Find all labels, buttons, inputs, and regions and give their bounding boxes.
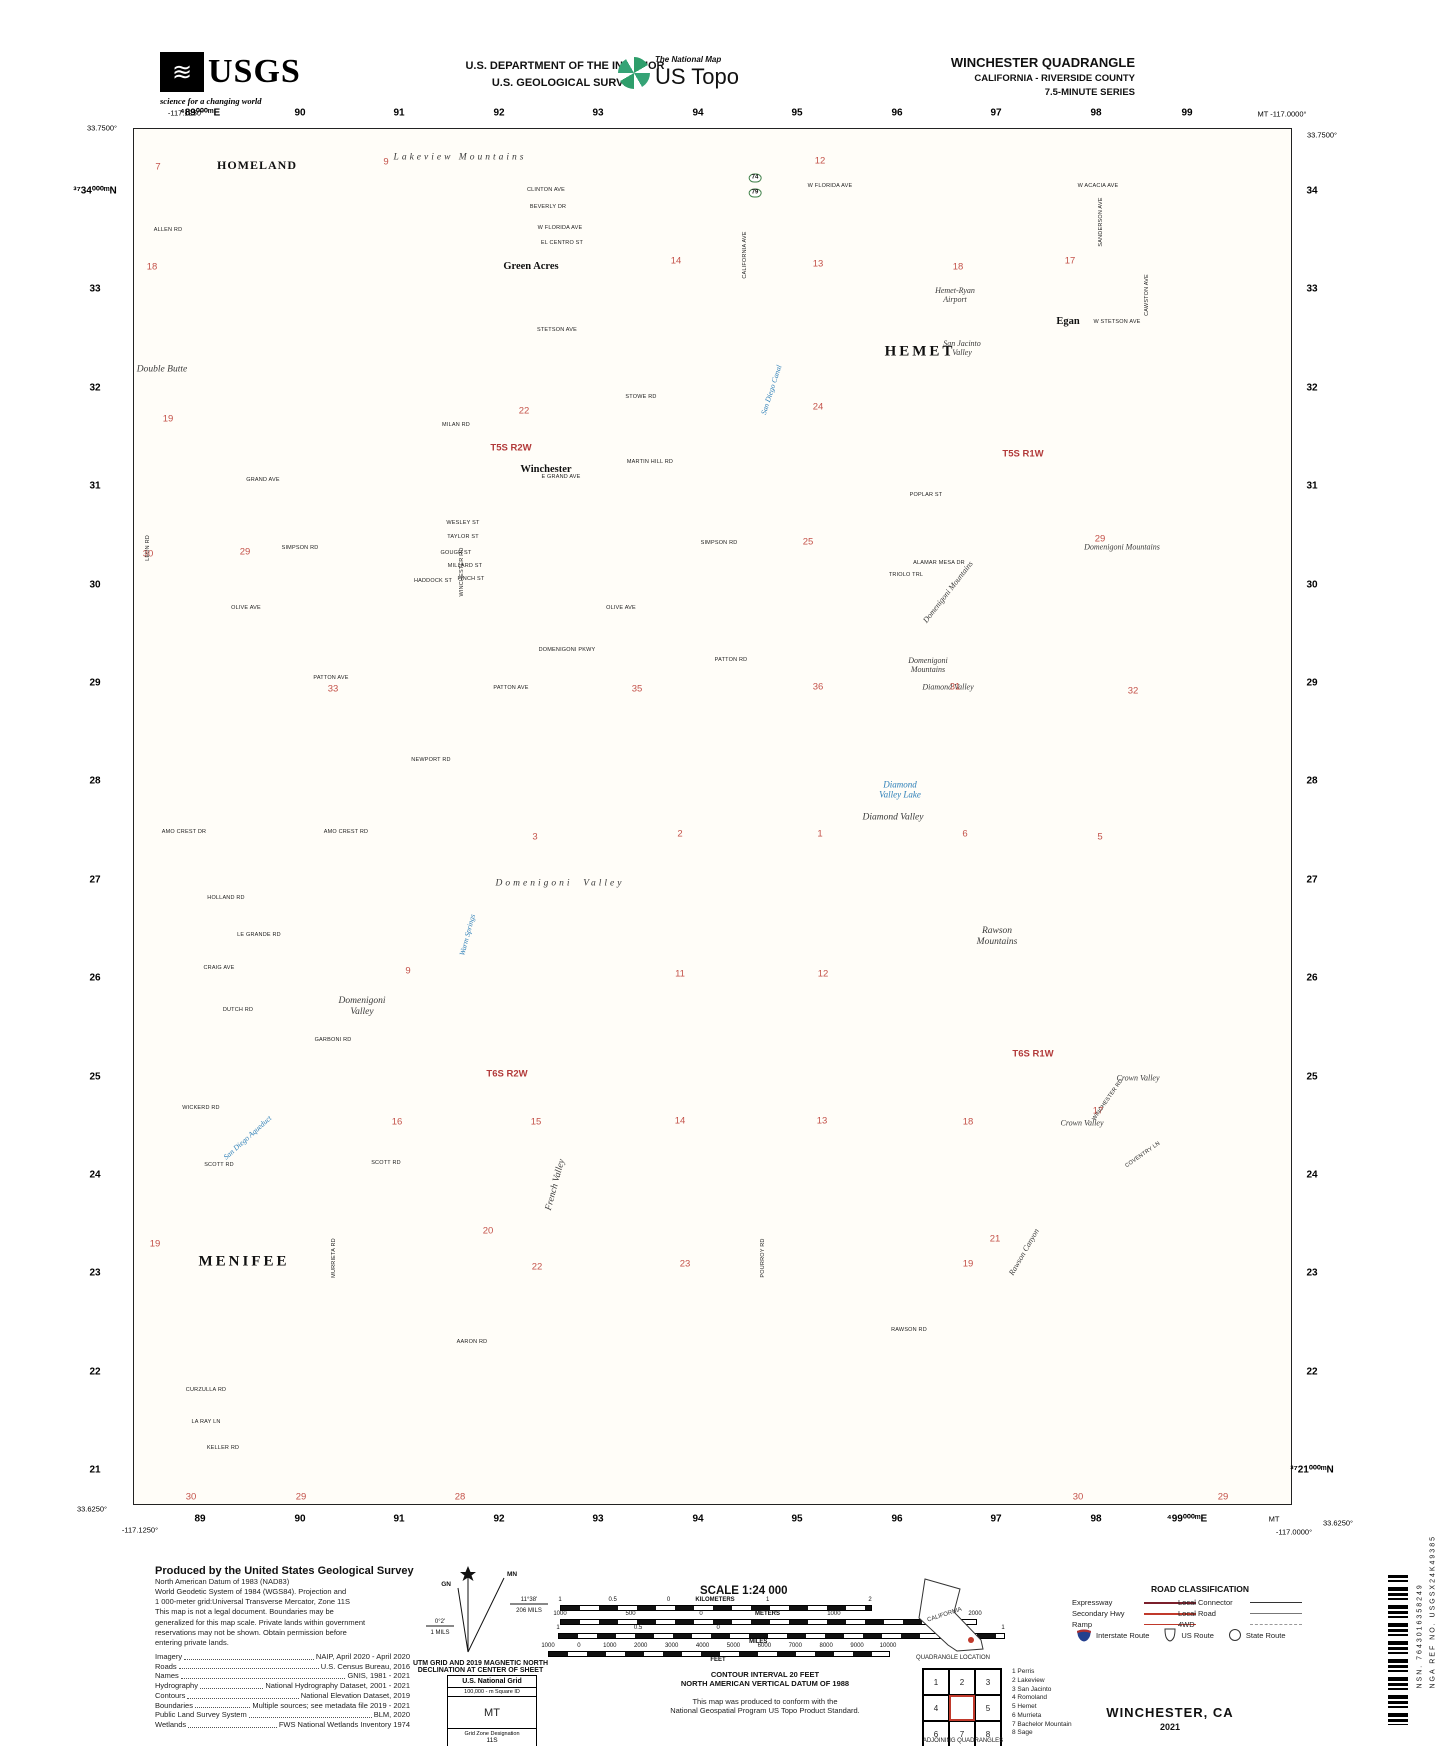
corner-coord-bottom-left-lat: 33.6250° — [77, 1506, 107, 1515]
grid-label-left: ³⁷34⁰⁰⁰ᵐN — [73, 185, 116, 197]
grid-label-top: 91 — [393, 107, 404, 119]
corner-coord-top-left-lat: 33.7500° — [87, 125, 117, 134]
credit-row: ImageryNAIP, April 2020 - April 2020 — [155, 1652, 410, 1662]
usgs-wordmark: USGS — [208, 52, 301, 92]
grid-label-left: 31 — [89, 480, 100, 492]
scale-tick-label: 1000 — [603, 1643, 616, 1649]
state-locator-map: CALIFORNIA — [905, 1576, 1001, 1652]
grid-label-right: 23 — [1306, 1267, 1317, 1279]
grid-label-left: 28 — [89, 775, 100, 787]
grid-label-bottom: 92 — [493, 1513, 504, 1525]
grid-label-top: 90 — [294, 107, 305, 119]
road-class-line-sample — [1250, 1602, 1302, 1603]
contour-interval-note: CONTOUR INTERVAL 20 FEET NORTH AMERICAN … — [630, 1670, 900, 1688]
scale-tick-label: 1 — [766, 1597, 769, 1603]
adjoining-cell: 3 — [975, 1669, 1001, 1695]
usgs-wave-icon: ≋ — [160, 52, 204, 92]
scale-tick-label: 0 — [577, 1643, 580, 1649]
grid-label-top: 99 — [1181, 107, 1192, 119]
national-map-icon — [618, 57, 650, 89]
scale-unit-label: METERS — [755, 1611, 780, 1617]
scale-tick-label: 5000 — [727, 1643, 740, 1649]
adjoining-cell-current — [949, 1695, 975, 1721]
corner-coord-bottom-right-mt: MT — [1269, 1516, 1280, 1525]
adjoining-quad-name: 4 Romoland — [1012, 1694, 1072, 1703]
datum-note-line: generalized for this map scale. Private … — [155, 1618, 425, 1628]
usng-gzd-value: 11S — [448, 1737, 536, 1746]
grid-label-left: 25 — [89, 1071, 100, 1083]
usng-square-id: MT — [448, 1697, 536, 1728]
declination-caption: UTM GRID AND 2019 MAGNETIC NORTH DECLINA… — [388, 1660, 573, 1674]
grid-label-right: 32 — [1306, 382, 1317, 394]
grid-north-line — [458, 1588, 468, 1652]
grid-label-right: 33 — [1306, 283, 1317, 295]
grid-label-left: 27 — [89, 874, 100, 886]
scale-tick-label: 2 — [868, 1597, 871, 1603]
datum-note-line: 1 000-meter grid:Universal Transverse Me… — [155, 1597, 425, 1607]
grid-label-left: 30 — [89, 579, 100, 591]
grid-label-left: 33 — [89, 283, 100, 295]
gn-label: GN — [441, 1581, 451, 1588]
interstate-route-label: Interstate Route — [1096, 1631, 1149, 1640]
usgs-tagline: science for a changing world — [160, 96, 262, 106]
usgs-logo: ≋ USGS — [160, 52, 301, 92]
quadrangle-title-block: WINCHESTER QUADRANGLE CALIFORNIA - RIVER… — [930, 55, 1135, 98]
adjoining-quadrangles-caption: ADJOINING QUADRANGLES — [908, 1738, 1018, 1744]
scale-tick-label: 1000 — [553, 1611, 566, 1617]
grid-label-right: 29 — [1306, 677, 1317, 689]
grid-label-left: 23 — [89, 1267, 100, 1279]
sheet-year: 2021 — [1090, 1722, 1250, 1732]
grid-label-top: 92 — [493, 107, 504, 119]
road-class-label: Expressway — [1072, 1598, 1144, 1607]
road-class-row: Local Road — [1178, 1608, 1302, 1619]
corner-coord-bottom-right-lat: 33.6250° — [1323, 1520, 1353, 1529]
national-map-label: The National Map — [655, 55, 739, 64]
adjoining-quad-name: 7 Bachelor Mountain — [1012, 1721, 1072, 1730]
grid-label-top: 97 — [990, 107, 1001, 119]
grid-label-left: 29 — [89, 677, 100, 689]
scale-tick-label: 6000 — [758, 1643, 771, 1649]
datum-note-line: World Geodetic System of 1984 (WGS84). P… — [155, 1587, 425, 1597]
scale-unit-label: KILOMETERS — [695, 1597, 734, 1603]
adjoining-quad-name: 1 Perris — [1012, 1668, 1072, 1677]
nsn-number: NSN. 7643016358249 — [1417, 1359, 1424, 1689]
grid-label-bottom: 89 — [194, 1513, 205, 1525]
grid-label-bottom: 94 — [692, 1513, 703, 1525]
scale-tick-label: 0 — [699, 1611, 702, 1617]
credit-row: NamesGNIS, 1981 - 2021 — [155, 1671, 410, 1681]
grid-label-top: 95 — [791, 107, 802, 119]
quad-subtitle: CALIFORNIA - RIVERSIDE COUNTY — [930, 73, 1135, 84]
interstate-shield-icon — [1076, 1628, 1092, 1642]
grid-label-bottom: 98 — [1090, 1513, 1101, 1525]
usng-title: U.S. National Grid — [448, 1676, 536, 1688]
corner-coord-bottom-right-lon: -117.0000° — [1276, 1529, 1312, 1538]
datum-note-line: reservations may not be shown. Obtain pe… — [155, 1628, 425, 1638]
scale-tick-label: 9000 — [850, 1643, 863, 1649]
grid-label-left: 24 — [89, 1169, 100, 1181]
adjoining-quadrangle-grid: 12345678 — [922, 1668, 1002, 1746]
usng-square-label: 100,000 - m Square ID — [448, 1688, 536, 1697]
corner-coord-top-right-lat: 33.7500° — [1307, 132, 1337, 141]
quad-title: WINCHESTER QUADRANGLE — [930, 55, 1135, 70]
credit-row: WetlandsFWS National Wetlands Inventory … — [155, 1720, 410, 1730]
nga-ref-number: NGA REF NO. USGSX24K49385 — [1430, 1359, 1437, 1689]
credit-row: ContoursNational Elevation Dataset, 2019 — [155, 1691, 410, 1701]
credit-row: HydrographyNational Hydrography Dataset,… — [155, 1681, 410, 1691]
scale-tick-label: 1000 — [541, 1643, 554, 1649]
scale-tick-label: 1000 — [827, 1611, 840, 1617]
grid-label-bottom: ⁴99⁰⁰⁰ᵐE — [1167, 1513, 1207, 1525]
grid-label-right: 31 — [1306, 480, 1317, 492]
scale-tick-label: 2000 — [634, 1643, 647, 1649]
produced-by-title: Produced by the United States Geological… — [155, 1565, 425, 1577]
road-class-row: Local Connector — [1178, 1597, 1302, 1608]
scale-bar — [548, 1651, 890, 1657]
grid-label-top: 98 — [1090, 107, 1101, 119]
road-class-label: Local Connector — [1178, 1598, 1250, 1607]
datum-notes: North American Datum of 1983 (NAD83)Worl… — [155, 1577, 425, 1648]
grid-label-left: 26 — [89, 972, 100, 984]
grid-label-bottom: 91 — [393, 1513, 404, 1525]
scale-tick-label: 500 — [626, 1611, 636, 1617]
us-topo-map-sheet: ≋ USGS science for a changing world U.S.… — [0, 0, 1445, 1746]
quadrangle-location-dot — [968, 1637, 974, 1643]
grid-label-right: 25 — [1306, 1071, 1317, 1083]
usng-box: U.S. National Grid 100,000 - m Square ID… — [447, 1675, 537, 1746]
sheet-title: WINCHESTER, CA — [1090, 1705, 1250, 1720]
data-credits: ImageryNAIP, April 2020 - April 2020Road… — [155, 1652, 425, 1730]
adjoining-cell: 4 — [923, 1695, 949, 1721]
datum-note-line: entering private lands. — [155, 1638, 425, 1648]
corner-coord-top-right-lon: MT -117.0000° — [1258, 111, 1307, 120]
grid-label-bottom: 90 — [294, 1513, 305, 1525]
scale-tick-label: 0.5 — [609, 1597, 617, 1603]
adjoining-cell: 1 — [923, 1669, 949, 1695]
grid-label-right: 30 — [1306, 579, 1317, 591]
scale-tick-label: 4000 — [696, 1643, 709, 1649]
us-route-shield-icon — [1163, 1628, 1177, 1642]
road-class-line-sample — [1250, 1613, 1302, 1614]
scale-tick-label: 0.5 — [634, 1625, 642, 1631]
grid-label-right: 34 — [1306, 185, 1317, 197]
grid-label-left: 32 — [89, 382, 100, 394]
grid-label-bottom: 96 — [891, 1513, 902, 1525]
gn-mils: 1 MILS — [430, 1630, 449, 1636]
grid-label-bottom: 97 — [990, 1513, 1001, 1525]
quadrangle-location-caption: QUADRANGLE LOCATION — [905, 1655, 1001, 1661]
quad-series: 7.5-MINUTE SERIES — [930, 87, 1135, 98]
magnetic-north-line — [468, 1578, 504, 1652]
grid-label-right: 22 — [1306, 1366, 1317, 1378]
adjoining-quad-name: 5 Hemet — [1012, 1703, 1072, 1712]
grid-label-right: 27 — [1306, 874, 1317, 886]
mn-mils: 206 MILS — [516, 1608, 542, 1614]
scale-tick-label: 8000 — [819, 1643, 832, 1649]
adjoining-cell: 2 — [949, 1669, 975, 1695]
scale-tick-label: 3000 — [665, 1643, 678, 1649]
adjoining-quad-name: 2 Lakeview — [1012, 1677, 1072, 1686]
mn-degrees: 11°38' — [521, 1597, 537, 1603]
gn-degrees: 0°2' — [435, 1619, 445, 1625]
scale-unit-label: FEET — [710, 1657, 725, 1663]
adjoining-quad-name: 3 San Jacinto — [1012, 1686, 1072, 1695]
credit-row: RoadsU.S. Census Bureau, 2016 — [155, 1662, 410, 1672]
product-standard-note: This map was produced to conform with th… — [610, 1697, 920, 1715]
scale-tick-label: 1 — [558, 1597, 561, 1603]
route-shields-legend: Interstate Route US Route State Route — [1076, 1628, 1300, 1642]
scale-tick-label: 0 — [717, 1625, 720, 1631]
corner-coord-bottom-left-lon: -117.1250° — [122, 1527, 158, 1536]
grid-label-right: 24 — [1306, 1169, 1317, 1181]
state-route-shield-icon — [1228, 1628, 1242, 1642]
us-route-label: US Route — [1181, 1631, 1214, 1640]
scale-tick-label: 1 — [1001, 1625, 1004, 1631]
adjoining-quadrangle-names: 1 Perris2 Lakeview3 San Jacinto4 Romolan… — [1012, 1668, 1072, 1738]
grid-label-right: 26 — [1306, 972, 1317, 984]
grid-label-left: 22 — [89, 1366, 100, 1378]
scale-title: SCALE 1:24 000 — [700, 1585, 788, 1597]
datum-note-line: North American Datum of 1983 (NAD83) — [155, 1577, 425, 1587]
credit-row: Public Land Survey SystemBLM, 2020 — [155, 1710, 410, 1720]
grid-label-left: 21 — [89, 1464, 100, 1476]
us-topo-label: US Topo — [655, 64, 739, 90]
adjoining-cell: 5 — [975, 1695, 1001, 1721]
scale-tick-label: 10000 — [880, 1643, 897, 1649]
corner-coord-top-left-lon: -117.1250° — [168, 110, 204, 119]
map-neatline — [133, 128, 1292, 1505]
national-map-logo: The National Map US Topo — [618, 55, 739, 90]
road-classification-right: Local ConnectorLocal Road4WD — [1178, 1597, 1302, 1630]
scale-tick-label: 7000 — [789, 1643, 802, 1649]
grid-label-right: 28 — [1306, 775, 1317, 787]
road-classification-title: ROAD CLASSIFICATION — [1120, 1584, 1280, 1594]
grid-label-top: 96 — [891, 107, 902, 119]
feet-scale: 1000010002000300040005000600070008000900… — [548, 1643, 888, 1665]
road-class-line-sample — [1250, 1624, 1302, 1625]
grid-label-right: ³⁷21⁰⁰⁰ᵐN — [1290, 1464, 1333, 1476]
adjoining-quad-name: 8 Sage — [1012, 1729, 1072, 1738]
grid-label-top: 94 — [692, 107, 703, 119]
mn-label: MN — [507, 1571, 517, 1578]
road-class-label: Local Road — [1178, 1609, 1250, 1618]
scale-tick-label: 0 — [667, 1597, 670, 1603]
production-block: Produced by the United States Geological… — [155, 1565, 425, 1730]
grid-label-bottom: 93 — [592, 1513, 603, 1525]
adjoining-quad-name: 6 Murrieta — [1012, 1712, 1072, 1721]
usng-gzd-label: Grid Zone Designation — [448, 1728, 536, 1737]
grid-label-top: 93 — [592, 107, 603, 119]
road-class-label: Secondary Hwy — [1072, 1609, 1144, 1618]
credit-row: BoundariesMultiple sources; see metadata… — [155, 1701, 410, 1711]
barcode — [1388, 1575, 1408, 1725]
datum-note-line: This map is not a legal document. Bounda… — [155, 1607, 425, 1617]
grid-label-bottom: 95 — [791, 1513, 802, 1525]
scale-tick-label: 1 — [556, 1625, 559, 1631]
state-route-label: State Route — [1246, 1631, 1286, 1640]
